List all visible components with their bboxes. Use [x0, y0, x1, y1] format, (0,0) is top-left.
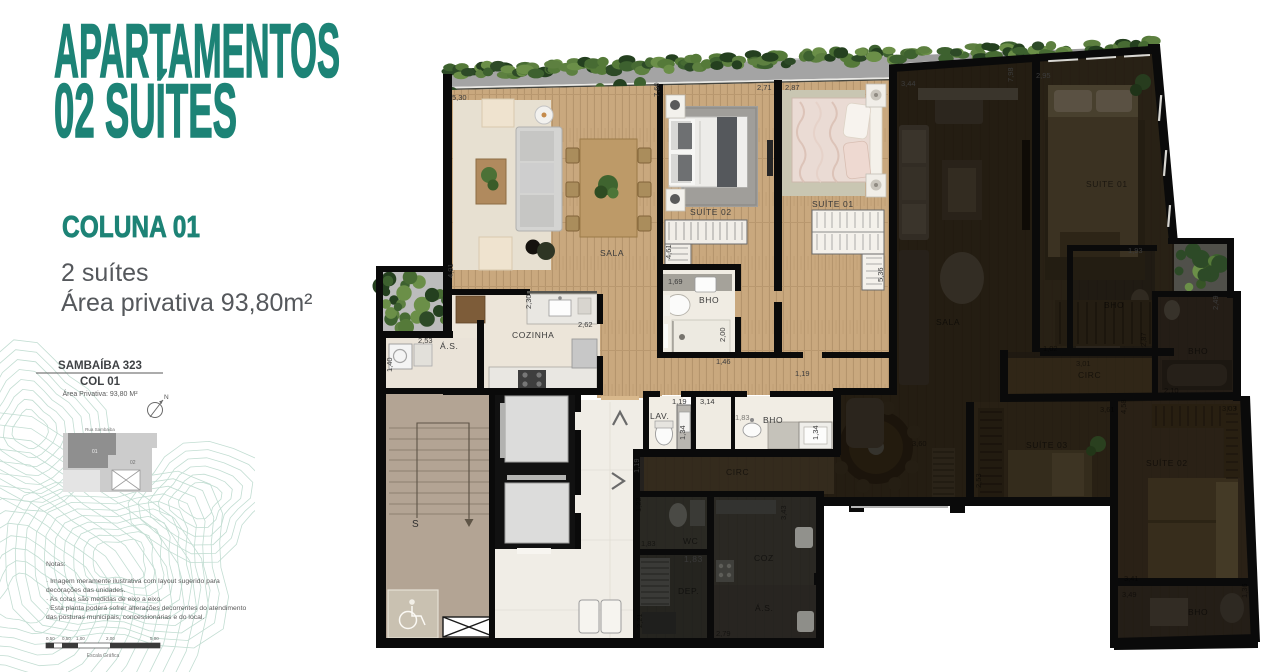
svg-text:02: 02	[130, 460, 136, 466]
svg-text:4,61: 4,61	[664, 244, 673, 259]
svg-text:SUÍTE 02: SUÍTE 02	[1146, 458, 1188, 468]
svg-text:5,00: 5,00	[150, 636, 159, 641]
svg-text:LAV.: LAV.	[650, 411, 669, 421]
svg-text:S: S	[412, 519, 419, 530]
svg-text:1,19: 1,19	[632, 458, 641, 473]
svg-text:01: 01	[92, 449, 98, 455]
svg-text:Á.S.: Á.S.	[440, 341, 458, 351]
svg-text:1,69: 1,69	[668, 277, 683, 286]
svg-text:3,60: 3,60	[912, 439, 927, 448]
svg-text:BHO: BHO	[1104, 300, 1124, 310]
svg-text:4,58: 4,58	[1119, 399, 1128, 414]
svg-text:3,41: 3,41	[1124, 574, 1139, 583]
svg-text:das posturas municipais, conce: das posturas municipais, concessionárias…	[46, 614, 204, 621]
svg-text:2,87: 2,87	[785, 83, 800, 92]
svg-text:7,98: 7,98	[1006, 67, 1015, 82]
svg-text:1,83: 1,83	[641, 539, 656, 548]
svg-text:7,60: 7,60	[652, 82, 661, 97]
svg-text:5,30: 5,30	[452, 93, 467, 102]
svg-text:3,01: 3,01	[1076, 359, 1091, 368]
svg-text:3,49: 3,49	[1122, 590, 1137, 599]
svg-text:2,30: 2,30	[524, 294, 533, 309]
svg-text:SUITE 01: SUITE 01	[1086, 179, 1128, 189]
svg-text:Área Privativa: 93,80 M²: Área Privativa: 93,80 M²	[62, 389, 138, 398]
svg-text:1,34: 1,34	[678, 425, 687, 440]
svg-text:2,79: 2,79	[716, 629, 731, 638]
svg-text:CIRC: CIRC	[726, 467, 749, 477]
svg-text:0,50: 0,50	[62, 636, 71, 641]
svg-text:2,53: 2,53	[974, 473, 983, 488]
svg-text:2,87: 2,87	[1139, 332, 1148, 347]
svg-text:1,46: 1,46	[716, 357, 731, 366]
svg-text:Área privativa 93,80m²: Área privativa 93,80m²	[61, 288, 313, 317]
svg-text:1,19: 1,19	[672, 397, 687, 406]
svg-text:0,50: 0,50	[46, 636, 55, 641]
svg-text:Á.S.: Á.S.	[755, 603, 773, 613]
svg-text:3,44: 3,44	[901, 79, 916, 88]
svg-text:SUÍTE 03: SUÍTE 03	[1026, 440, 1068, 450]
svg-text:2,00: 2,00	[718, 327, 727, 342]
svg-text:COL 01: COL 01	[80, 376, 121, 388]
svg-text:02 SUÍTES: 02 SUÍTES	[54, 69, 237, 154]
svg-text:3,14: 3,14	[700, 397, 715, 406]
svg-text:1,19: 1,19	[795, 369, 810, 378]
svg-text:BHO: BHO	[763, 415, 783, 425]
svg-text:5,36: 5,36	[876, 267, 885, 282]
svg-text:1,40: 1,40	[385, 357, 394, 372]
svg-text:BHO: BHO	[1188, 346, 1208, 356]
svg-text:2,62: 2,62	[578, 320, 593, 329]
svg-text:3,03: 3,03	[1222, 404, 1237, 413]
svg-text:decorações das unidades.: decorações das unidades.	[46, 587, 125, 594]
svg-text:2,21: 2,21	[635, 613, 644, 628]
svg-text:1,36: 1,36	[1240, 583, 1249, 598]
svg-text:SALA: SALA	[600, 248, 624, 258]
svg-text:SAMBAÍBA 323: SAMBAÍBA 323	[58, 359, 142, 372]
svg-text:2 suítes: 2 suítes	[61, 259, 149, 287]
svg-text:DEP.: DEP.	[678, 586, 699, 596]
svg-text:CIRC: CIRC	[1078, 370, 1101, 380]
svg-text:3,43: 3,43	[779, 505, 788, 520]
svg-text:1,22: 1,22	[634, 497, 643, 512]
svg-text:3,61: 3,61	[1100, 405, 1115, 414]
svg-text:1,02: 1,02	[1043, 344, 1058, 353]
svg-text:N: N	[164, 394, 169, 401]
svg-text:SALA: SALA	[936, 317, 960, 327]
svg-text:2,95: 2,95	[1036, 71, 1051, 80]
svg-text:SUÍTE 02: SUÍTE 02	[690, 207, 732, 217]
svg-text:2,53: 2,53	[418, 336, 433, 345]
svg-text:4,91: 4,91	[446, 263, 455, 278]
svg-text:1,00: 1,00	[76, 636, 85, 641]
svg-text:Notas:: Notas:	[46, 561, 66, 568]
svg-text:· Imagem meramente ilustrativa: · Imagem meramente ilustrativa com layou…	[46, 578, 220, 585]
svg-text:1,93: 1,93	[1128, 246, 1143, 255]
svg-text:Escala Gráfica: Escala Gráfica	[87, 653, 120, 659]
svg-text:WC: WC	[683, 536, 698, 546]
svg-text:2,71: 2,71	[757, 83, 772, 92]
svg-text:2,10: 2,10	[1164, 386, 1179, 395]
svg-text:BHO: BHO	[1188, 607, 1208, 617]
svg-text:COLUNA 01: COLUNA 01	[62, 209, 200, 244]
svg-text:· Esta planta poderá sofrer al: · Esta planta poderá sofrer alterações d…	[46, 605, 246, 612]
svg-text:1,34: 1,34	[811, 425, 820, 440]
svg-text:· As cotas são medidas de eixo: · As cotas são medidas de eixo a eixo.	[46, 596, 162, 603]
svg-text:BHO: BHO	[699, 295, 719, 305]
svg-text:2,00: 2,00	[106, 636, 115, 641]
svg-text:SUÍTE 01: SUÍTE 01	[812, 199, 854, 209]
svg-text:2,49: 2,49	[1211, 295, 1220, 310]
svg-text:1,83: 1,83	[684, 554, 703, 564]
svg-text:COZ: COZ	[754, 553, 774, 563]
svg-text:COZINHA: COZINHA	[512, 330, 554, 340]
svg-text:Rua Sambaiba: Rua Sambaiba	[85, 427, 115, 432]
svg-text:1,83: 1,83	[735, 413, 750, 422]
